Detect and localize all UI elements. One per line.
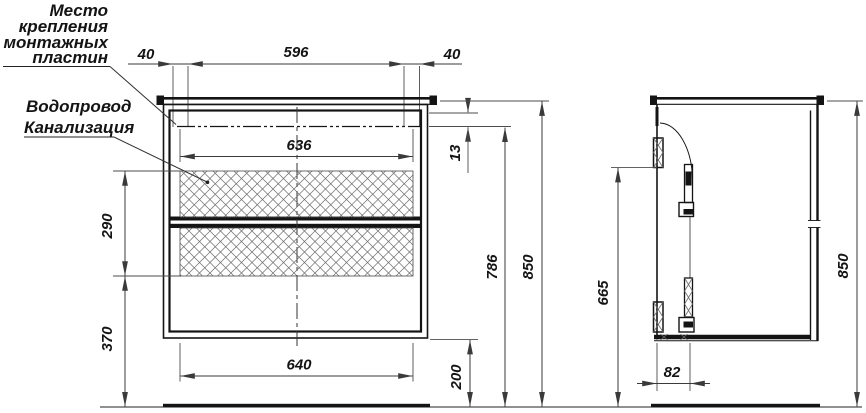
note-plumbing-line1: Водопровод [26, 97, 131, 116]
dim-label-pipe-line-height: 786 [484, 254, 501, 280]
drawer-divider-lower [170, 224, 422, 228]
dim-label-plate-bottom-height: 665 [595, 280, 612, 306]
drawing-canvas: 40 596 40 636 13 786 850 200 290 [0, 0, 866, 413]
note-plumbing-line2: Канализация [24, 118, 134, 137]
background [0, 0, 866, 413]
dim-label-pipe-offset: 13 [447, 144, 464, 161]
dim-label-drawer-zone-height: 290 [99, 213, 116, 240]
countertop-left-cap [157, 96, 165, 106]
plumbing-cutout-zone-upper [180, 171, 413, 217]
note-plumbing-leader-dot [206, 181, 210, 185]
note-mounting-line4: пластин [32, 48, 108, 67]
countertop-right-cap [430, 96, 438, 106]
dim-label-plates-span: 596 [283, 44, 309, 61]
dim-label-plate-depth: 82 [664, 364, 681, 381]
technical-drawing-vanity-cabinet: 40 596 40 636 13 786 850 200 290 [0, 0, 866, 413]
dim-label-bottom-width: 640 [286, 357, 312, 374]
dim-label-margin-left: 40 [137, 46, 155, 63]
dim-label-floor-clearance: 200 [448, 364, 465, 391]
dim-label-margin-right: 40 [443, 46, 461, 63]
dim-label-total-height-front: 850 [520, 254, 537, 280]
plumbing-cutout-zone-lower [180, 228, 413, 276]
dim-label-zone-to-floor: 370 [99, 326, 116, 352]
dim-label-total-height-side: 850 [835, 253, 852, 279]
dim-label-pipe-zone-width: 636 [286, 137, 312, 154]
